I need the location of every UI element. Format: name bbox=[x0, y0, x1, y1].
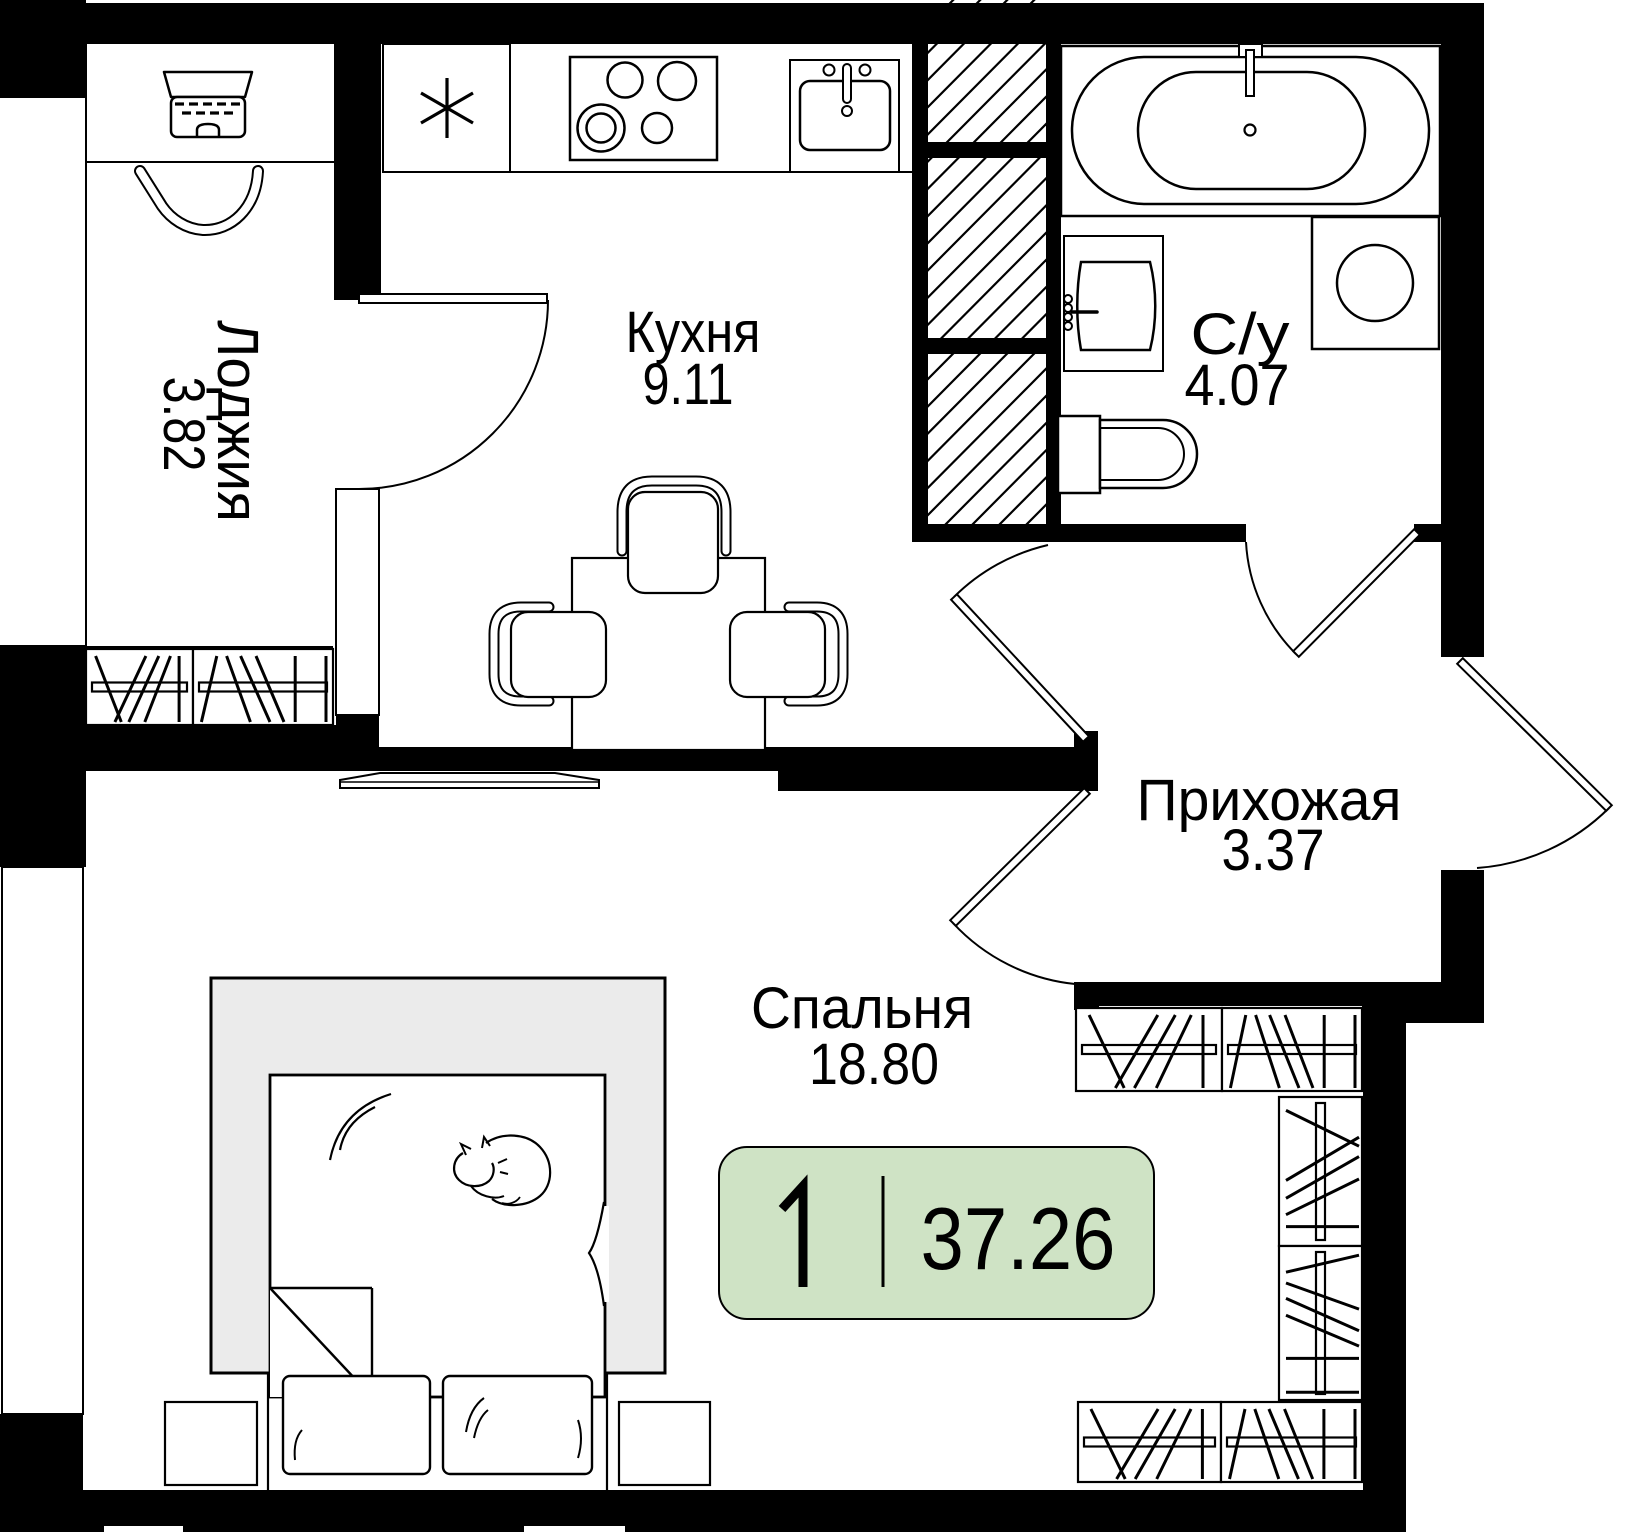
svg-text:37.26: 37.26 bbox=[921, 1189, 1116, 1288]
svg-text:18.80: 18.80 bbox=[809, 1032, 939, 1097]
svg-text:9.11: 9.11 bbox=[643, 352, 734, 417]
svg-text:4.07: 4.07 bbox=[1185, 353, 1290, 418]
svg-text:3.37: 3.37 bbox=[1222, 818, 1325, 883]
svg-text:3.82: 3.82 bbox=[151, 377, 216, 472]
